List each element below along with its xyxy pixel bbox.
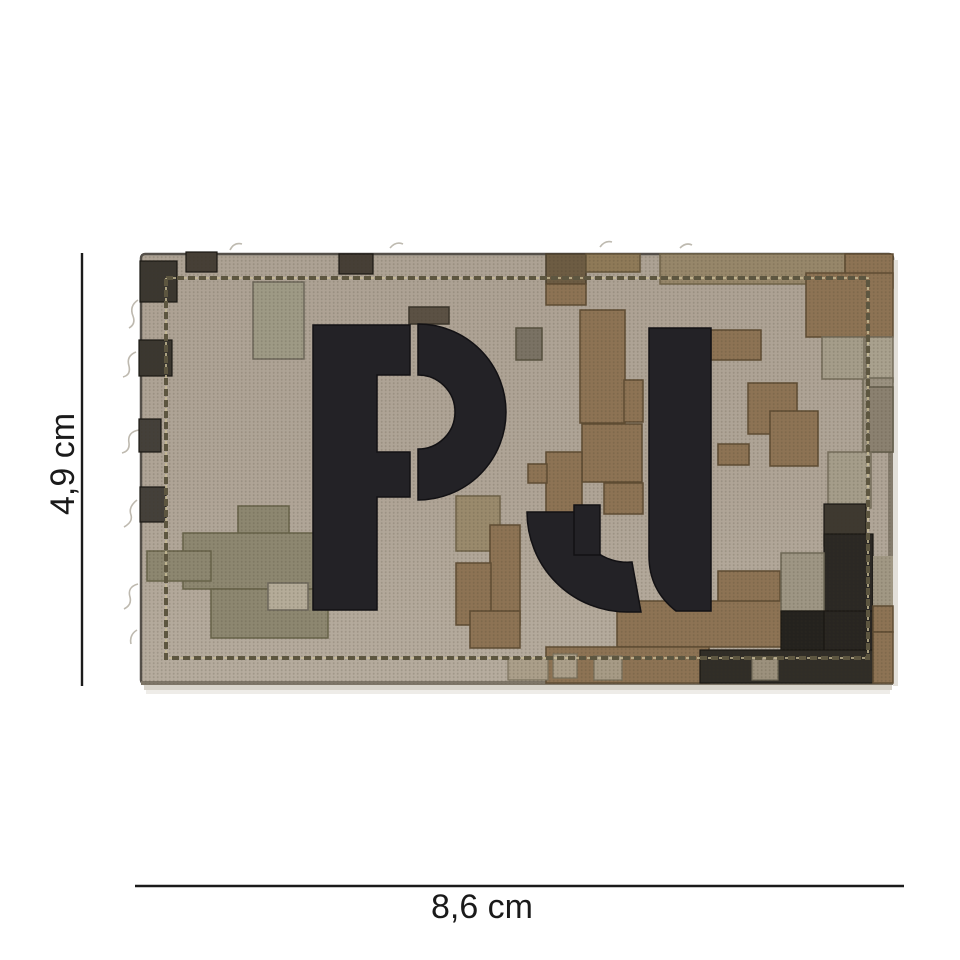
svg-text:4,9 cm: 4,9 cm xyxy=(44,413,82,515)
svg-text:8,6 cm: 8,6 cm xyxy=(431,888,533,926)
